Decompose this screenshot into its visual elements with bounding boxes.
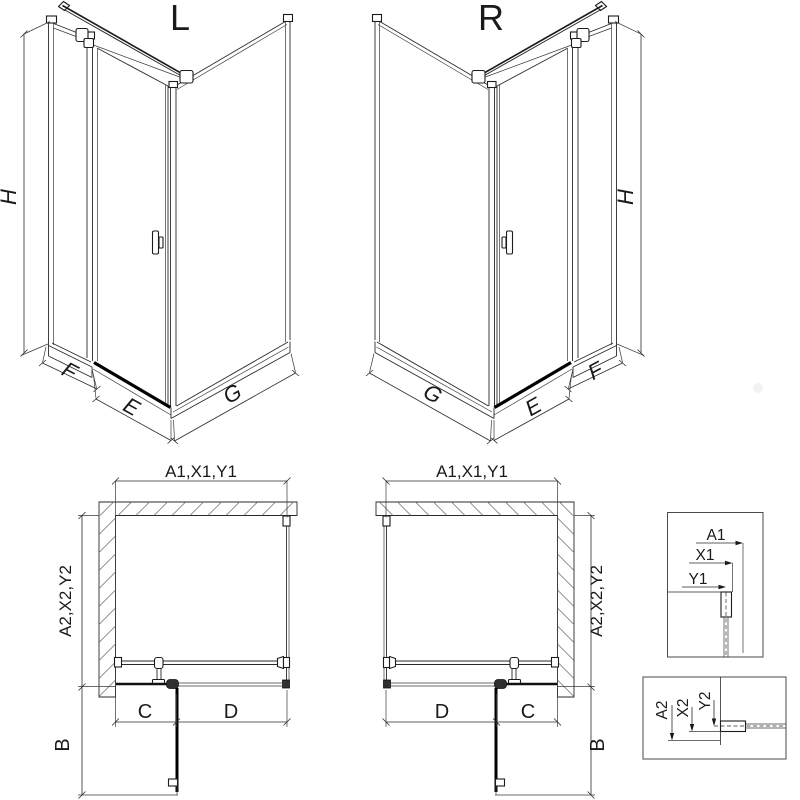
plan-a2-b-dimension	[78, 512, 178, 799]
right-f-label: F	[583, 356, 608, 385]
right-plan-c-label: C	[521, 701, 535, 723]
shower-enclosure-technical-drawing: L R H F E G H G E F	[0, 0, 800, 800]
left-plan-c-label: C	[138, 701, 152, 723]
detail-box-top: A1 X1 Y1	[668, 513, 764, 658]
right-plan-view-geometry	[376, 478, 595, 799]
right-height-label: H	[613, 189, 638, 205]
plan-support-bar	[115, 657, 290, 685]
right-plan-b-label: B	[587, 738, 609, 751]
right-view-title: R	[478, 0, 504, 38]
left-plan-view-geometry	[78, 478, 297, 799]
detail-top-a1-label: A1	[707, 527, 726, 544]
detail-box-bottom: A2 X2 Y2	[643, 677, 786, 759]
left-g-label: G	[219, 379, 246, 409]
left-view-title: L	[170, 0, 190, 38]
left-plan-d-label: D	[224, 701, 238, 723]
right-plan-top-dim-label: A1,X1,Y1	[436, 462, 508, 481]
right-plan-d-label: D	[435, 701, 449, 723]
shower-tray	[49, 342, 291, 419]
left-height-label: H	[0, 189, 21, 205]
door-handle	[153, 231, 164, 254]
left-plan-b-label: B	[52, 738, 74, 751]
right-g-label: G	[419, 379, 446, 409]
watermark-dot	[753, 383, 763, 393]
detail-bottom-a2-label: A2	[654, 701, 671, 720]
detail-bottom-y2-label: Y2	[697, 692, 714, 711]
right-plan-side-dim-label: A2,X2,Y2	[587, 565, 606, 637]
left-plan-top-dim-label: A1,X1,Y1	[165, 462, 237, 481]
height-dimension	[21, 22, 51, 357]
right-e-label: E	[521, 392, 546, 421]
left-plan-side-dim-label: A2,X2,Y2	[56, 565, 75, 637]
left-e-label: E	[119, 392, 144, 421]
detail-bottom-x2-label: X2	[675, 699, 692, 718]
detail-top-y1-label: Y1	[689, 571, 708, 588]
plan-a1-dimension	[112, 478, 291, 518]
detail-top-x1-label: X1	[696, 547, 715, 564]
